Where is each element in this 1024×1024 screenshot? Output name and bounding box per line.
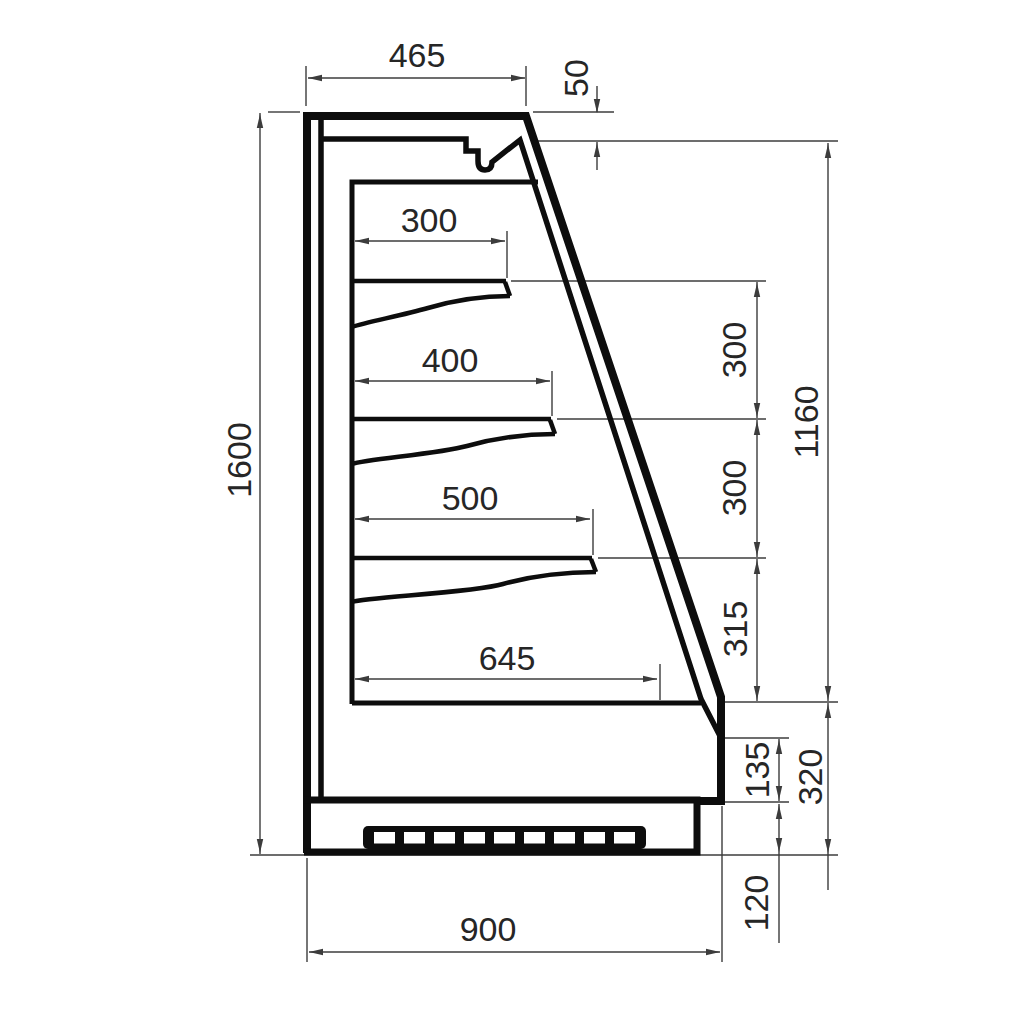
arrowhead-icon <box>754 421 760 435</box>
dim-label-top-depth: 465 <box>389 36 446 74</box>
arrowhead-icon <box>643 676 657 682</box>
dim-label-bottom-shelf-depth: 645 <box>479 639 536 677</box>
technical-drawing-page: 465 50 300 400 500 645 1600 300 300 315 … <box>0 0 1024 1024</box>
dim-label-shelf1-depth: 300 <box>401 201 458 239</box>
arrowhead-icon <box>754 542 760 556</box>
arrowhead-icon <box>776 838 782 852</box>
dim-label-base-section-height: 320 <box>791 749 829 806</box>
arrowhead-icon <box>355 676 369 682</box>
dim-label-shelf-spacing-upper: 300 <box>715 322 753 379</box>
arrowhead-icon <box>594 143 600 157</box>
arrowhead-icon <box>754 560 760 574</box>
dim-label-shelf-spacing-lower: 300 <box>715 460 753 517</box>
shelf-3 <box>352 558 596 602</box>
dim-label-shelf3-depth: 500 <box>442 479 499 517</box>
dimension-labels: 465 50 300 400 500 645 1600 300 300 315 … <box>220 36 829 948</box>
dim-label-overall-height: 1600 <box>220 422 258 498</box>
outer-shell-path <box>307 116 721 853</box>
shelf-1 <box>352 281 510 327</box>
arrowhead-icon <box>754 403 760 417</box>
arrowhead-icon <box>776 805 782 819</box>
arrowhead-icon <box>355 378 369 384</box>
dim-label-front-opening-height: 1160 <box>787 385 825 458</box>
arrowhead-icon <box>491 238 505 244</box>
cavity-outline <box>352 182 538 704</box>
arrowhead-icon <box>754 686 760 700</box>
arrowhead-icon <box>576 516 590 522</box>
dim-label-canopy-drop: 50 <box>557 59 595 97</box>
dim-label-bottom-spacing: 315 <box>716 601 754 658</box>
dim-label-front-panel-height: 135 <box>738 742 776 799</box>
arrowhead-icon <box>825 839 831 853</box>
arrowhead-icon <box>511 75 525 81</box>
arrowhead-icon <box>355 238 369 244</box>
display-case-cross-section-drawing: 465 50 300 400 500 645 1600 300 300 315 … <box>0 0 1024 1024</box>
arrowhead-icon <box>825 686 831 700</box>
arrowhead-icon <box>754 283 760 297</box>
arrowhead-icon <box>536 378 550 384</box>
arrowhead-icon <box>776 740 782 754</box>
arrowhead-icon <box>825 704 831 718</box>
ventilation-grille <box>363 826 646 849</box>
arrowhead-icon <box>706 949 720 955</box>
grille-slots <box>374 832 635 844</box>
arrowhead-icon <box>257 839 263 853</box>
arrowhead-icon <box>308 75 322 81</box>
cabinet-profile <box>304 116 724 853</box>
dim-label-plinth-recess-height: 120 <box>737 875 775 932</box>
arrowhead-icon <box>257 114 263 128</box>
arrowhead-icon <box>355 516 369 522</box>
arrowhead-icon <box>776 786 782 800</box>
arrowhead-icon <box>309 949 323 955</box>
arrowhead-icon <box>594 99 600 113</box>
arrowhead-icon <box>825 144 831 158</box>
shelf-2 <box>352 419 555 464</box>
dim-label-overall-depth: 900 <box>460 910 517 948</box>
dim-label-shelf2-depth: 400 <box>422 341 479 379</box>
